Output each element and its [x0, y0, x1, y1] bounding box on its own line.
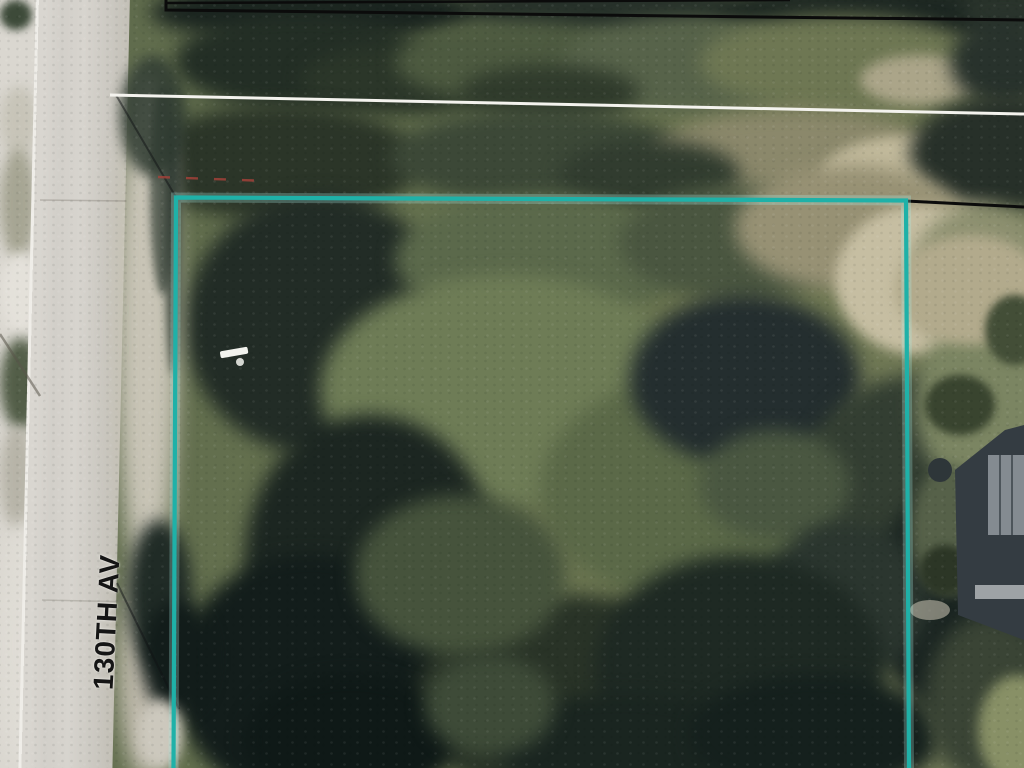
red-dashed-annotation — [158, 177, 268, 181]
road-joint-line — [40, 200, 126, 201]
adjacent-parcel-boundary-right — [906, 201, 1024, 207]
boundary-overlay — [0, 0, 1024, 768]
subject-parcel-boundary — [174, 198, 910, 768]
aerial-parcel-map: 130TH AV — [0, 0, 1024, 768]
driveway-edge-line — [0, 334, 40, 396]
right-of-way-line — [110, 95, 1024, 114]
utility-pole-marker — [220, 347, 249, 366]
wire-shadow — [116, 95, 177, 199]
subject-parcel-halo — [174, 198, 910, 768]
building-footprint — [910, 425, 1024, 640]
adjacent-parcel-boundary-upper — [166, 0, 790, 3]
